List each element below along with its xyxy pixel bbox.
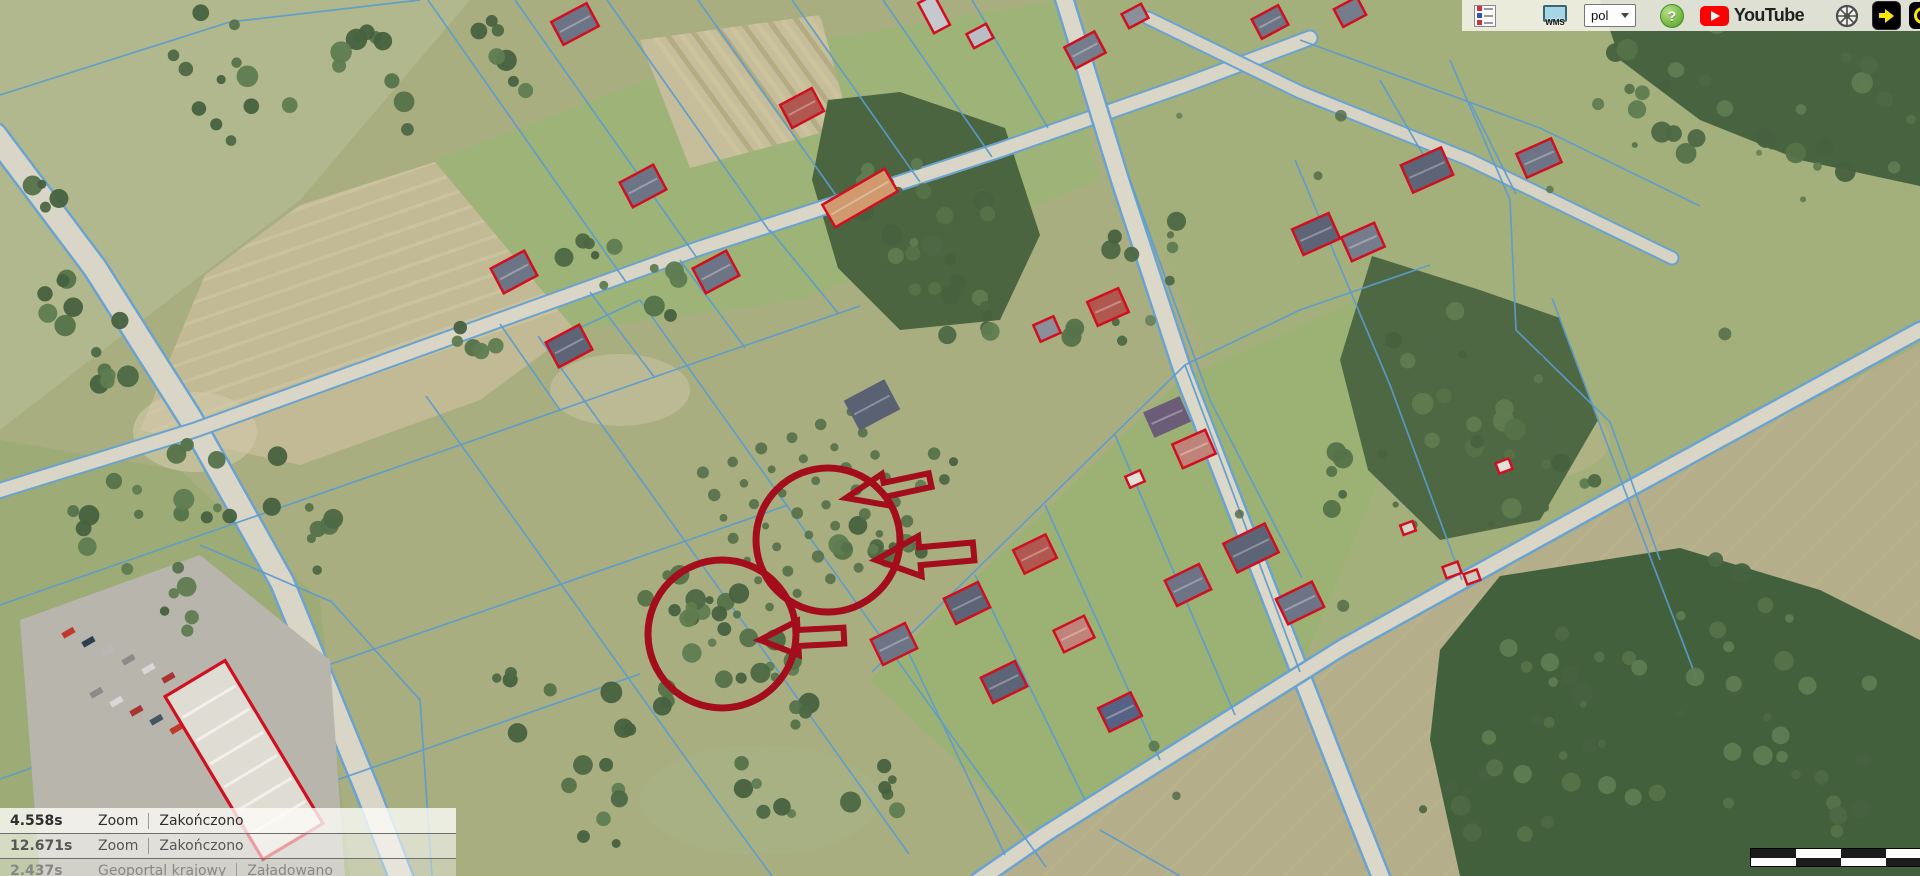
status-text: Zakończono (149, 813, 456, 829)
map-viewer: { "app": {"type": "aerial-map-viewer", "… (0, 0, 1920, 876)
scale-bar-segment (1886, 858, 1920, 867)
map-scale-bar (1750, 848, 1920, 867)
scale-bar-segment (1751, 858, 1796, 867)
scale-bar-segment (1796, 849, 1841, 858)
chevron-down-icon (1621, 13, 1629, 18)
wms-label: WMS (1545, 18, 1565, 27)
status-time: 12.671s (0, 838, 88, 854)
globe-wheel-button[interactable] (1834, 3, 1860, 29)
status-row: 12.671s Zoom Zakończono (0, 833, 456, 858)
scale-bar-segment (1886, 849, 1920, 858)
language-select-value: pol (1591, 8, 1608, 23)
scale-bar-segment (1841, 849, 1886, 858)
globe-wheel-icon (1834, 3, 1860, 29)
yellow-arrow-right-icon (1885, 9, 1894, 23)
youtube-label: YouTube (1734, 5, 1804, 26)
legend-list-icon (1477, 6, 1493, 11)
status-log-panel: 4.558s Zoom Zakończono 12.671s Zoom Zako… (0, 808, 456, 876)
status-source: Zoom (88, 813, 148, 829)
top-toolbar: WMS pol ? YouTube (1462, 0, 1920, 31)
status-time: 4.558s (0, 813, 88, 829)
aerial-map-canvas[interactable] (0, 0, 1920, 876)
scale-bar-segment (1796, 858, 1841, 867)
scale-bar-segment (1841, 858, 1886, 867)
status-time: 2.437s (0, 863, 88, 876)
help-button[interactable]: ? (1660, 4, 1684, 28)
legend-list-icon (1477, 20, 1493, 25)
yellow-ring-icon (1914, 7, 1920, 24)
status-row: 2.437s Geoportal krajowy Załadowano (0, 858, 456, 876)
status-text: Załadowano (237, 863, 456, 876)
scale-bar-segment (1751, 849, 1796, 858)
status-text: Zakończono (149, 838, 456, 854)
status-source: Zoom (88, 838, 148, 854)
status-source: Geoportal krajowy (88, 863, 236, 876)
youtube-link[interactable]: YouTube (1700, 5, 1804, 26)
legend-button[interactable] (1474, 5, 1496, 27)
legend-list-icon (1477, 13, 1493, 18)
youtube-play-icon (1700, 6, 1729, 26)
language-select[interactable]: pol (1584, 4, 1636, 27)
help-label: ? (1668, 8, 1677, 24)
forward-button[interactable] (1872, 1, 1901, 30)
partially-visible-button[interactable] (1909, 2, 1920, 29)
status-row: 4.558s Zoom Zakończono (0, 808, 456, 833)
wms-button[interactable]: WMS (1540, 3, 1570, 29)
